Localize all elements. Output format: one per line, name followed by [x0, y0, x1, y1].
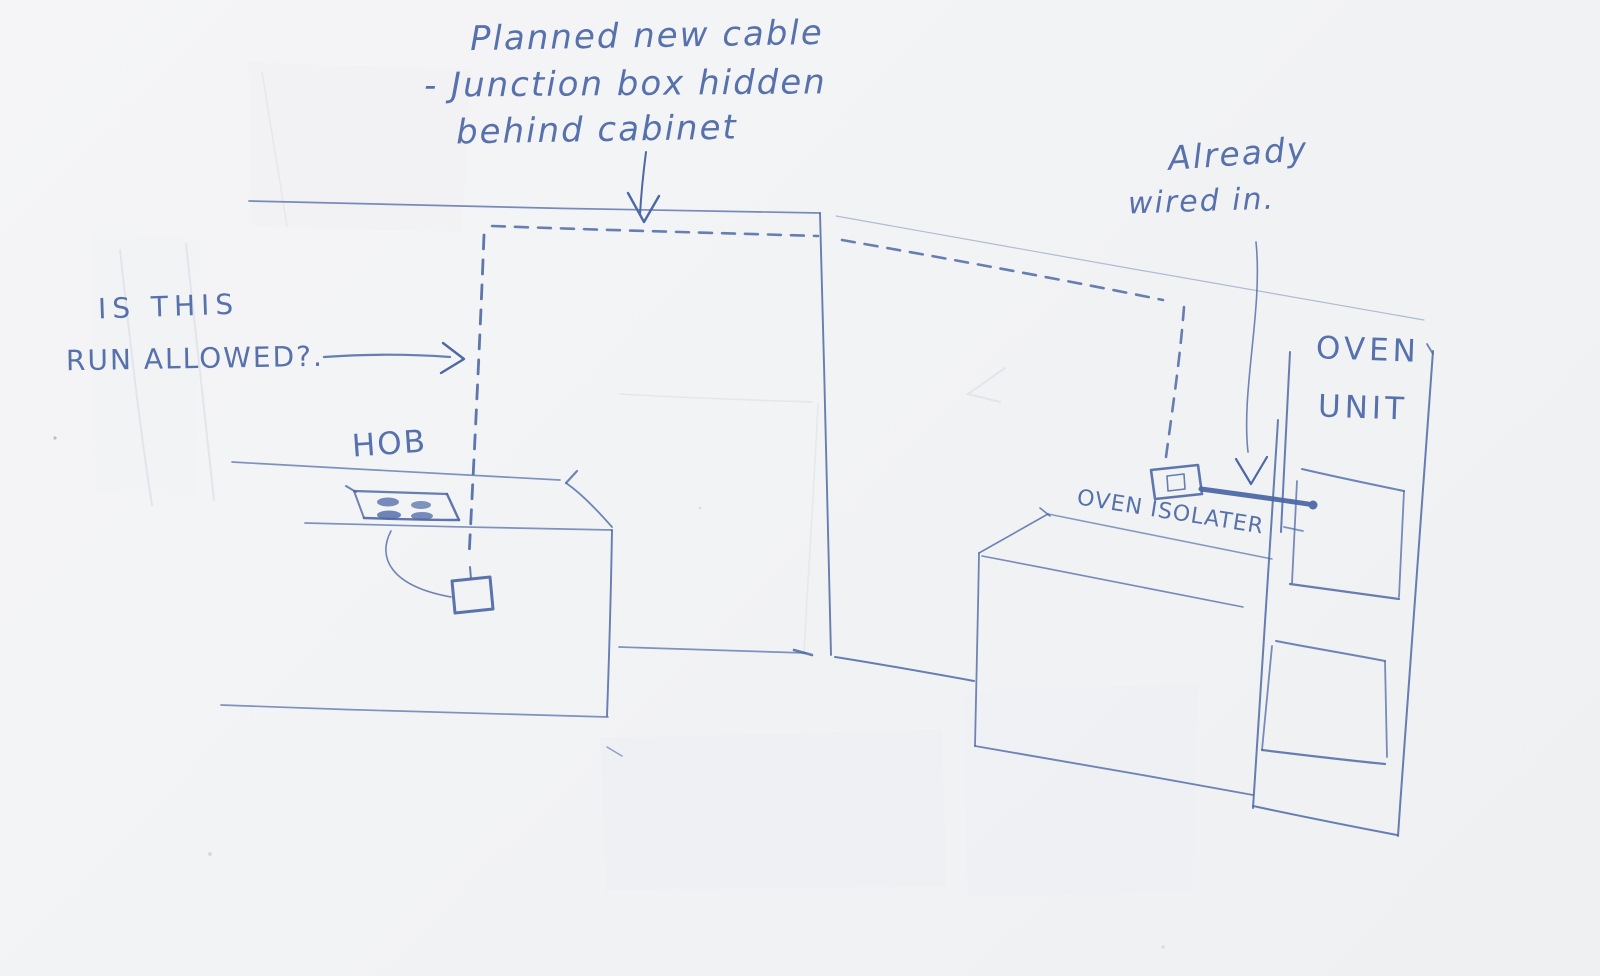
- base-cabinet-front-top-edge: [982, 556, 1243, 607]
- oven-unit-left-edge: [1281, 352, 1290, 532]
- already-note-line2: wired in.: [1127, 181, 1275, 221]
- floor-line-middle: [619, 647, 806, 653]
- hob-burner: [377, 498, 399, 507]
- scanned-sketch-page: Planned new cable - Junction box hidden …: [0, 0, 1600, 976]
- oven-unit-bottom-edge: [1253, 806, 1397, 835]
- planned-note-line1: Planned new cable: [470, 13, 824, 59]
- hob-counter: [221, 462, 974, 756]
- hob-burner: [377, 511, 401, 520]
- question-note-line2: RUN ALLOWED?.: [66, 340, 324, 377]
- hob-junction-box: [386, 531, 493, 613]
- base-cabinet-top-left-edge: [979, 514, 1048, 553]
- isolator-switch-inner: [1167, 474, 1185, 491]
- hob-burner: [411, 512, 433, 520]
- paper-creases: [53, 62, 1198, 949]
- wall-top-right-slope-line: [836, 216, 1424, 320]
- planned-cable-arrow: [628, 152, 659, 222]
- oven-door-lower: [1262, 641, 1387, 764]
- planned-note-line2: - Junction box hidden: [424, 62, 827, 106]
- floor-line-right-slope: [835, 657, 974, 681]
- sketch-canvas: [0, 0, 1600, 976]
- planned-note-line3: behind cabinet: [456, 108, 738, 153]
- counter-back-edge: [232, 462, 560, 480]
- oven-unit-label-line2: UNIT: [1317, 388, 1408, 427]
- question-note-line1: IS THIS: [97, 288, 239, 326]
- oven-cable-end-dot: [1309, 501, 1318, 510]
- hob-label: HOB: [351, 423, 428, 464]
- counter-corner-diagonal: [566, 483, 612, 527]
- oven-door-upper: [1290, 469, 1404, 599]
- junction-box-outline: [452, 577, 493, 613]
- counter-bottom-line: [221, 705, 608, 717]
- oven-unit-label-line1: OVEN: [1315, 330, 1420, 370]
- already-wired-arrow: [1236, 242, 1267, 484]
- oven-cable-thick-line: [1201, 489, 1308, 504]
- hob-cable-curve: [386, 531, 451, 597]
- planned-cable-dashed-run: [492, 226, 1184, 457]
- hob-burner: [411, 501, 431, 509]
- counter-front-edge: [305, 523, 612, 530]
- question-arrow: [324, 343, 464, 373]
- counter-front-vertical: [607, 530, 612, 716]
- hob-cable-dashed-run: [469, 235, 484, 557]
- isolator-box-outline: [1151, 465, 1202, 499]
- oven-cable: [1201, 489, 1318, 510]
- hob: [346, 486, 459, 520]
- wall-corner-vertical: [820, 213, 831, 655]
